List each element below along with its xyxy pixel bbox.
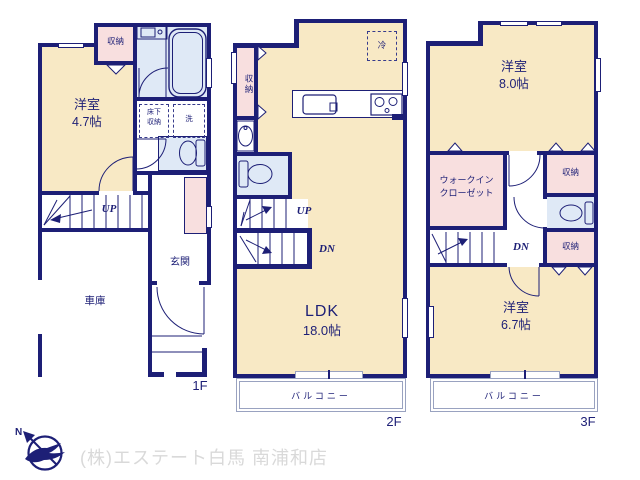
floor-label-3f: 3F [574,415,602,429]
north-arrow-icon [29,437,57,465]
bird-icon [25,443,65,462]
wall [233,264,312,269]
porch-wall-left [148,285,152,377]
ldk-name: LDK [287,303,357,321]
room-area: 8.0帖 [479,78,549,92]
stairs-down-label-3f: DN [506,241,536,253]
compass-logo: N [14,424,74,478]
window [231,52,237,84]
wall [38,191,42,232]
room-area: 4.7帖 [52,116,122,130]
wall [426,41,483,46]
wall [38,228,152,232]
wall [426,230,430,263]
room-name: 洋室 [52,98,122,112]
room-name: 洋室 [479,60,549,74]
ldk-area: 18.0帖 [287,324,357,338]
window-tick [524,370,526,379]
window [595,58,601,92]
kitchen-counter [292,90,404,118]
floor-label-1f: 1F [186,379,214,393]
closet-label-2f: 収納 [239,66,253,102]
balcony-2f: バルコニー [236,378,406,412]
balcony-label-2f: バルコニー [239,381,403,409]
garage-wall-left-upper [38,232,42,280]
wic-label-1: ウォークイン [430,176,503,186]
wall [392,114,407,120]
entrance-door-arc [152,287,204,352]
laundry-label: 洗 [176,115,202,123]
floor-label-2f: 2F [380,415,408,429]
room-name: 洋室 [481,301,551,315]
balcony-3f: バルコニー [430,378,598,412]
closet-label: 収納 [98,37,133,46]
stairs-up-label: UP [95,203,123,215]
shoe-cabinet-1f [184,177,207,234]
window [58,43,84,48]
bathroom-1f [133,23,211,101]
company-watermark: (株)エステート白馬 南浦和店 [80,444,328,470]
washbasin-area-2f [233,116,258,156]
entrance-opening [157,281,199,285]
compass-circle [29,437,62,470]
porch-wall-bottom [176,372,207,377]
window [500,21,528,26]
wall [233,43,299,48]
door-opening [507,263,539,267]
window [206,206,212,228]
wall [478,21,483,46]
wic-label-2: クローゼット [430,189,503,199]
underfloor-storage-label-1: 床下 [141,109,167,117]
door-opening [543,199,547,227]
window [428,306,434,338]
underfloor-storage-label-2: 収納 [141,119,167,127]
wall [133,191,152,195]
stairs-up-label-2f: UP [290,205,318,217]
window [536,21,562,26]
floor-plan-canvas: 洋室 4.7帖 収納 床下 収納 洗 UP 玄関 車庫 1F バルコニー [0,0,640,480]
wall [233,228,312,233]
refrigerator-label: 冷 [367,41,397,50]
wall [294,19,299,48]
stairs-3f [432,232,494,263]
room-area: 6.7帖 [481,319,551,333]
notch-2f [228,14,295,44]
north-label: N [15,427,22,438]
closet-lower-label: 収納 [548,242,593,251]
porch-wall-stub [152,372,164,377]
toilet-nook-1f [158,136,207,171]
north-arrowhead [23,431,35,443]
garage-wall-left-lower [38,334,42,377]
entrance-label: 玄関 [158,257,202,268]
stairs-down-label-2f: DN [312,243,342,255]
toilet-door-arc-3f [514,197,545,228]
toilet-room-3f [543,193,598,232]
garage-label: 車庫 [72,296,118,308]
door-opening [99,191,133,195]
closet-upper-label: 収納 [548,168,593,177]
window-tick [328,370,330,379]
notch-3f [421,13,483,43]
toilet-room-2f [233,152,292,199]
room8-door-arc [509,155,540,186]
window [402,298,408,338]
door-opening [509,151,537,155]
window [206,58,212,88]
balcony-label-3f: バルコニー [433,381,595,409]
window [402,62,408,96]
